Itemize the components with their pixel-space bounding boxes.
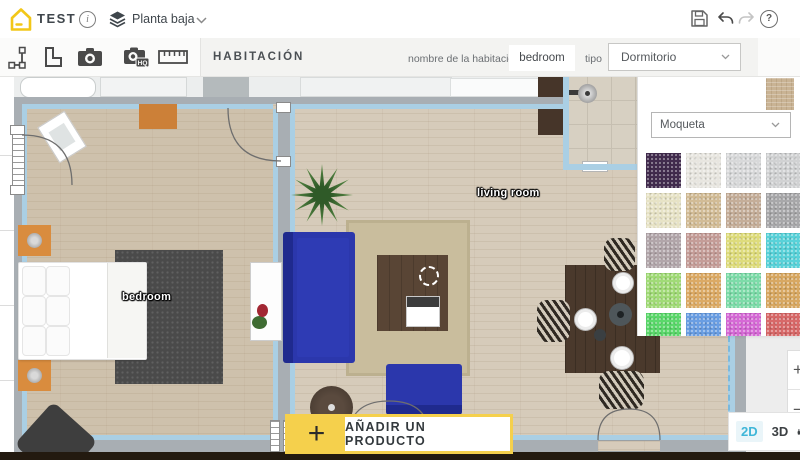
side-table-dot — [328, 404, 335, 411]
layers-icon[interactable] — [108, 10, 127, 28]
pillow — [22, 296, 46, 326]
save-icon[interactable] — [690, 9, 709, 28]
decor-ring — [419, 266, 439, 286]
plate — [610, 346, 634, 370]
view-3d-button[interactable]: 3D — [772, 424, 789, 439]
carpet-swatch[interactable] — [686, 153, 721, 188]
carpet-swatch[interactable] — [766, 233, 800, 268]
sofa-cushions — [297, 238, 349, 357]
project-title[interactable]: TEST — [37, 11, 76, 26]
orange-mat[interactable] — [139, 104, 177, 129]
current-floor-texture[interactable] — [766, 78, 794, 110]
sofa[interactable] — [283, 232, 355, 363]
room-type-select[interactable]: Dormitorio — [608, 43, 741, 71]
undo-icon[interactable] — [717, 12, 734, 26]
lamp — [27, 368, 42, 383]
camera-icon[interactable] — [75, 42, 105, 72]
wall-node[interactable] — [276, 102, 291, 113]
carpet-swatch[interactable] — [726, 313, 761, 336]
pillow — [22, 326, 46, 356]
carpet-swatch[interactable] — [726, 153, 761, 188]
laptop[interactable] — [406, 296, 440, 327]
laptop-screen — [407, 297, 439, 307]
carpet-swatch[interactable] — [686, 193, 721, 228]
desk-pad — [49, 123, 76, 151]
carpet-swatch[interactable] — [766, 153, 800, 188]
vanity[interactable] — [300, 77, 452, 97]
bowl — [609, 303, 632, 326]
room-type-label: tipo — [585, 53, 602, 65]
nightstand[interactable] — [18, 360, 51, 391]
pillow — [46, 266, 70, 296]
dining-chair[interactable] — [599, 371, 644, 409]
chevron-down-icon[interactable] — [196, 17, 207, 24]
bathroom-strip[interactable] — [14, 76, 563, 97]
carpet-swatch-grid — [646, 153, 800, 336]
info-icon[interactable]: i — [79, 11, 96, 28]
carpet-swatch[interactable] — [766, 193, 800, 228]
carpet-swatch[interactable] — [726, 193, 761, 228]
bathroom-counter[interactable] — [100, 77, 187, 97]
plus-icon: + — [288, 417, 345, 451]
dimension-line — [0, 305, 14, 306]
material-category-select[interactable]: Moqueta — [651, 112, 791, 138]
room-name-label: nombre de la habitación — [408, 53, 520, 65]
pillow — [46, 296, 70, 326]
dimension-line — [0, 230, 14, 231]
view-2d-button[interactable]: 2D — [736, 421, 763, 442]
plant-leaves[interactable] — [252, 316, 267, 329]
room-label-bedroom: bedroom — [122, 291, 171, 303]
room-properties-panel: HABITACIÓN nombre de la habitación tipo … — [200, 38, 758, 76]
carpet-swatch[interactable] — [646, 233, 681, 268]
cup — [594, 329, 606, 341]
pillow — [46, 326, 70, 356]
redo-icon[interactable] — [738, 12, 755, 26]
sink[interactable] — [450, 78, 552, 97]
draw-room-tool[interactable] — [37, 42, 67, 72]
add-product-label: AÑADIR UN PRODUCTO — [345, 417, 510, 451]
bathtub[interactable] — [20, 77, 96, 98]
carpet-swatch[interactable] — [686, 233, 721, 268]
wall-node[interactable] — [10, 125, 25, 135]
material-category-value: Moqueta — [660, 119, 771, 131]
window[interactable] — [12, 131, 25, 189]
ruler-icon[interactable] — [158, 42, 188, 72]
nightstand[interactable] — [18, 225, 51, 256]
help-icon[interactable]: ? — [760, 10, 778, 28]
app-logo-house-icon[interactable] — [7, 5, 35, 33]
room-highlight — [290, 104, 563, 109]
room-highlight — [563, 76, 569, 170]
carpet-swatch[interactable] — [646, 313, 681, 336]
dining-chair[interactable] — [537, 300, 570, 342]
add-product-button[interactable]: + AÑADIR UN PRODUCTO — [285, 414, 513, 454]
toolbar: HQ HABITACIÓN nombre de la habitación ti… — [0, 38, 800, 77]
dining-chair[interactable] — [604, 238, 635, 271]
carpet-swatch[interactable] — [646, 273, 681, 308]
material-panel: Moqueta — [637, 76, 800, 336]
carpet-swatch[interactable] — [646, 193, 681, 228]
lamp — [27, 233, 42, 248]
draw-wall-tool[interactable] — [4, 42, 34, 72]
svg-text:HQ: HQ — [137, 60, 147, 67]
room-name-input[interactable] — [509, 45, 575, 71]
room-panel-title: HABITACIÓN — [213, 51, 304, 63]
chevron-down-icon — [721, 54, 730, 60]
carpet-swatch[interactable] — [726, 273, 761, 308]
bowl-dot — [617, 311, 624, 318]
plate — [612, 272, 634, 294]
carpet-swatch[interactable] — [766, 273, 800, 308]
plate — [574, 308, 597, 331]
header-bar: TEST i Planta baja ? — [0, 0, 800, 39]
dimension-line — [0, 380, 14, 381]
zoom-in-button[interactable]: + — [788, 351, 800, 390]
window[interactable] — [270, 420, 280, 454]
carpet-swatch[interactable] — [726, 233, 761, 268]
sofa[interactable] — [386, 364, 462, 415]
plant-flowers — [257, 304, 268, 317]
room-label-living-room: living room — [477, 187, 540, 199]
room-type-value: Dormitorio — [621, 50, 721, 64]
view-mode-bar: 2D 3D — [728, 412, 800, 451]
floor-selector[interactable]: Planta baja — [132, 12, 195, 26]
camera-hq-icon[interactable]: HQ — [121, 42, 151, 72]
pillow — [22, 266, 46, 296]
carpet-swatch[interactable] — [686, 273, 721, 308]
carpet-swatch[interactable] — [686, 313, 721, 336]
shower[interactable] — [203, 76, 249, 97]
door-opening[interactable] — [598, 440, 660, 452]
bed[interactable] — [18, 262, 147, 360]
floor-planner-app: bedroom living room TEST i Planta baja — [0, 0, 800, 460]
carpet-swatch[interactable] — [646, 153, 681, 188]
carpet-swatch[interactable] — [766, 313, 800, 336]
chevron-down-icon — [771, 122, 780, 128]
shower-head-dot — [585, 91, 590, 96]
duvet — [107, 263, 146, 358]
wall-node[interactable] — [276, 156, 291, 167]
dresser[interactable] — [250, 262, 282, 341]
wall-node[interactable] — [10, 185, 25, 195]
